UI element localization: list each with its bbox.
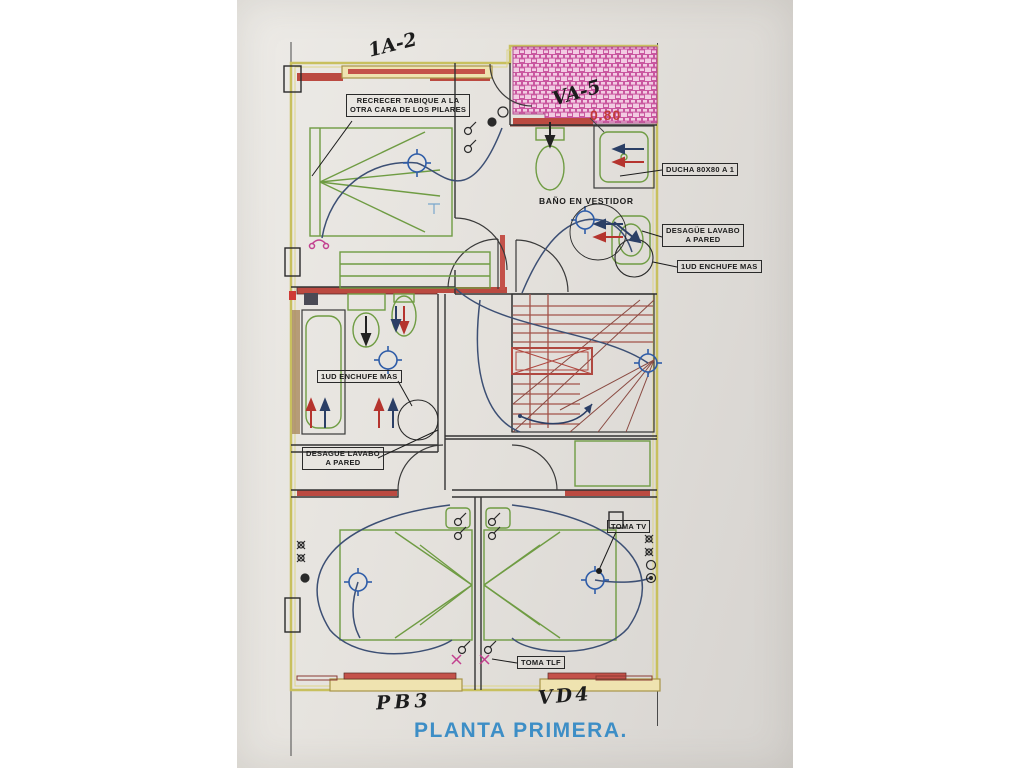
note-recrecer-line2: OTRA CARA DE LOS PILARES [350, 105, 466, 114]
label-desague-lavabo-left: DESAGUE LAVABO A PARED [302, 447, 384, 470]
label-desague-left-line1: DESAGUE LAVABO [306, 449, 380, 458]
handwritten-dimension: 0.80 [590, 107, 621, 123]
label-desague-right-line1: DESAGÜE LAVABO [666, 226, 740, 235]
plan-title: PLANTA PRIMERA. [414, 719, 628, 743]
note-recrecer: RECRECER TABIQUE A LA OTRA CARA DE LOS P… [346, 94, 470, 117]
frame-lines [291, 42, 658, 756]
label-desague-right-line2: A PARED [666, 235, 740, 244]
label-bano-en-vestidor: BAÑO EN VESTIDOR [536, 195, 637, 208]
label-toma-tv: TOMA TV [607, 520, 650, 533]
label-enchufe-left: 1UD ENCHUFE MAS [317, 370, 402, 383]
label-desague-left-line2: A PARED [306, 458, 380, 467]
staircase [512, 294, 654, 432]
floorplan-drawing [0, 0, 1024, 768]
label-ducha: DUCHA 80X80 A 1 [662, 163, 738, 176]
handwritten-bottom-right-window: VD4 [537, 683, 592, 710]
handwritten-bottom-left-window: PB3 [375, 690, 432, 715]
label-enchufe-right: 1UD ENCHUFE MAS [677, 260, 762, 273]
label-desague-lavabo-right: DESAGÜE LAVABO A PARED [662, 224, 744, 247]
note-recrecer-line1: RECRECER TABIQUE A LA [350, 96, 466, 105]
label-toma-tlf: TOMA TLF [517, 656, 565, 669]
